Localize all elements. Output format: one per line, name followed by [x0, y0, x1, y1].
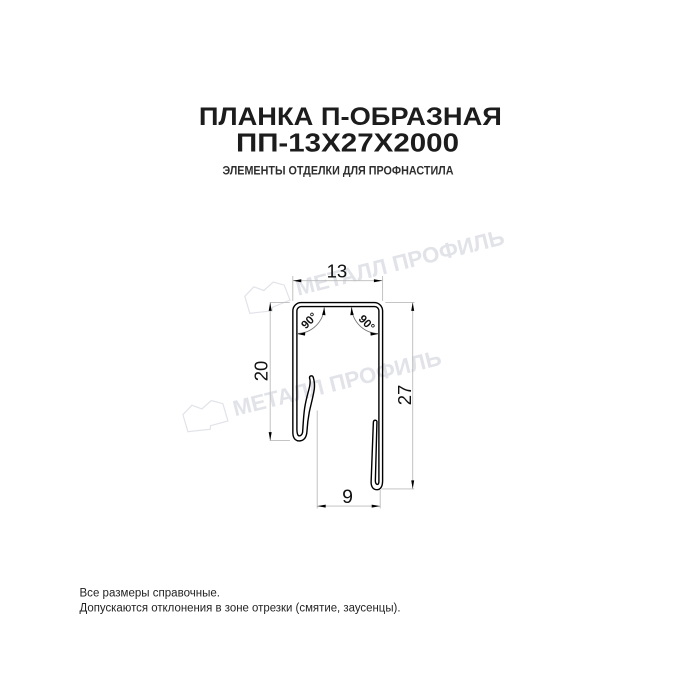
svg-text:Допускаются отклонения в зоне: Допускаются отклонения в зоне отрезки (с… [80, 603, 401, 615]
svg-text:Все размеры справочные.: Все размеры справочные. [80, 588, 221, 600]
svg-text:27: 27 [394, 385, 415, 406]
svg-text:20: 20 [250, 361, 271, 382]
svg-text:ЭЛЕМЕНТЫ ОТДЕЛКИ ДЛЯ ПРОФНАСТИ: ЭЛЕМЕНТЫ ОТДЕЛКИ ДЛЯ ПРОФНАСТИЛА [223, 164, 455, 177]
svg-text:9: 9 [342, 486, 353, 508]
svg-text:13: 13 [327, 260, 348, 281]
svg-text:ПП-13Х27Х2000: ПП-13Х27Х2000 [236, 128, 459, 158]
